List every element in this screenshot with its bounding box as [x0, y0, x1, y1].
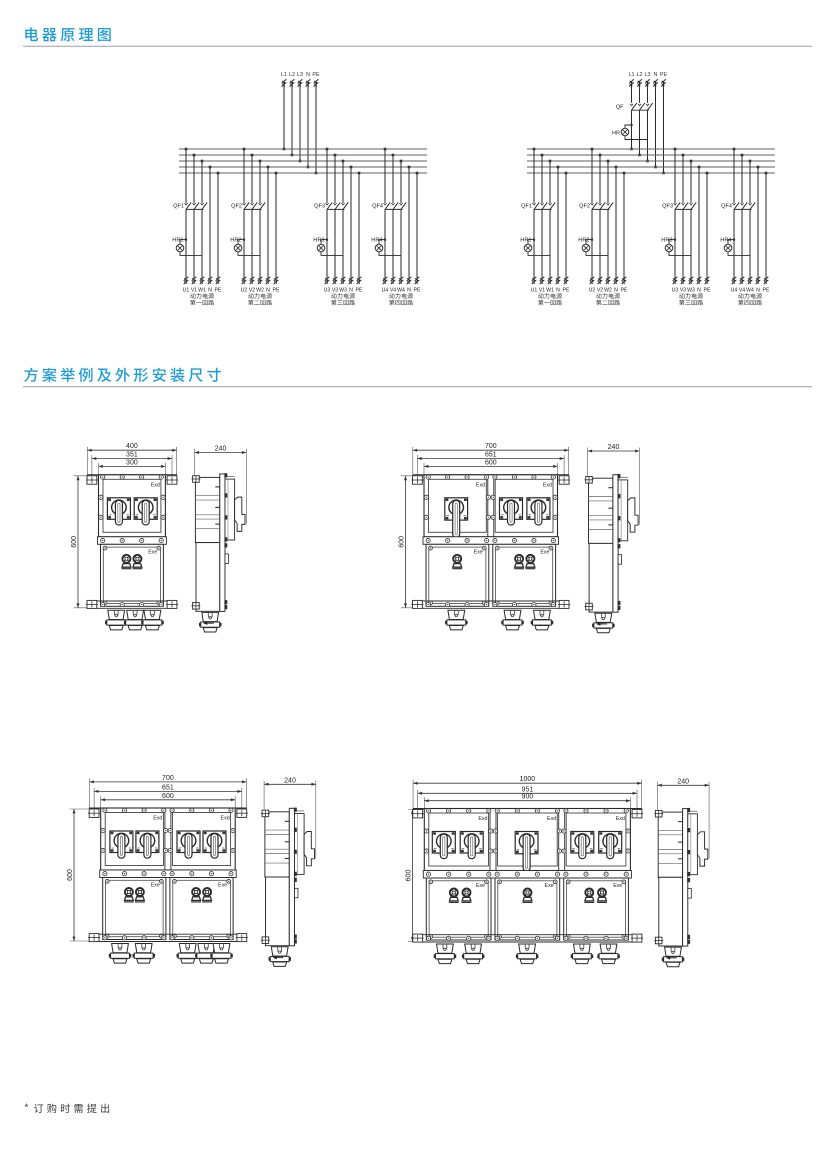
svg-text:Exd: Exd — [543, 482, 552, 488]
svg-text:QF4: QF4 — [372, 204, 383, 210]
svg-text:V4: V4 — [390, 288, 396, 294]
svg-text:Exd: Exd — [153, 816, 162, 822]
svg-text:Exd: Exd — [478, 816, 487, 822]
svg-text:Exe: Exe — [148, 549, 157, 555]
svg-text:HR3: HR3 — [313, 237, 324, 243]
svg-text:L3: L3 — [297, 72, 303, 78]
svg-text:240: 240 — [215, 446, 227, 453]
svg-text:HR: HR — [612, 131, 620, 137]
svg-text:PE: PE — [414, 288, 421, 294]
svg-text:U4: U4 — [382, 288, 389, 294]
svg-text:W1: W1 — [198, 288, 206, 294]
svg-text:U4: U4 — [731, 288, 738, 294]
svg-text:L1: L1 — [281, 72, 287, 78]
svg-text:N: N — [697, 288, 701, 294]
svg-text:W3: W3 — [339, 288, 347, 294]
svg-text:N: N — [306, 72, 310, 78]
svg-text:351: 351 — [126, 452, 138, 459]
svg-text:300: 300 — [126, 459, 138, 466]
svg-text:HR4: HR4 — [371, 237, 382, 243]
svg-text:Exd: Exd — [221, 816, 230, 822]
svg-text:HR1: HR1 — [520, 237, 531, 243]
svg-text:600: 600 — [485, 459, 497, 466]
svg-text:W3: W3 — [687, 288, 695, 294]
svg-text:240: 240 — [284, 777, 296, 784]
svg-text:N: N — [349, 288, 353, 294]
svg-text:600: 600 — [405, 870, 412, 882]
svg-text:U3: U3 — [672, 288, 679, 294]
svg-text:600: 600 — [71, 536, 78, 548]
svg-text:600: 600 — [162, 793, 174, 800]
svg-text:PE: PE — [215, 288, 222, 294]
svg-text:Exe: Exe — [613, 883, 622, 889]
svg-text:L2: L2 — [289, 72, 295, 78]
svg-text:951: 951 — [522, 786, 534, 793]
svg-text:L2: L2 — [637, 72, 643, 78]
svg-text:N: N — [614, 288, 618, 294]
svg-text:N: N — [266, 288, 270, 294]
svg-text:U2: U2 — [241, 288, 248, 294]
svg-text:W2: W2 — [256, 288, 264, 294]
svg-text:V4: V4 — [739, 288, 745, 294]
svg-text:*: * — [25, 1103, 29, 1114]
svg-text:700: 700 — [162, 775, 174, 782]
svg-text:HR2: HR2 — [230, 237, 241, 243]
svg-text:Exd: Exd — [151, 482, 160, 488]
svg-text:600: 600 — [67, 869, 74, 881]
svg-text:V1: V1 — [539, 288, 545, 294]
svg-text:QF3: QF3 — [314, 204, 325, 210]
svg-text:PE: PE — [704, 288, 711, 294]
svg-text:PE: PE — [763, 288, 770, 294]
svg-text:Exd: Exd — [476, 482, 485, 488]
svg-text:1000: 1000 — [520, 776, 536, 783]
svg-text:Exe: Exe — [545, 883, 554, 889]
svg-text:QF1: QF1 — [521, 204, 532, 210]
svg-text:PE: PE — [312, 72, 320, 78]
svg-text:U2: U2 — [589, 288, 596, 294]
svg-text:L1: L1 — [629, 72, 635, 78]
svg-text:V1: V1 — [191, 288, 197, 294]
svg-text:HR2: HR2 — [578, 237, 589, 243]
svg-text:Exe: Exe — [476, 883, 485, 889]
svg-text:W2: W2 — [604, 288, 612, 294]
svg-text:V2: V2 — [597, 288, 603, 294]
svg-text:N: N — [654, 72, 658, 78]
svg-text:PE: PE — [621, 288, 628, 294]
svg-text:651: 651 — [485, 452, 497, 459]
svg-text:W4: W4 — [746, 288, 754, 294]
svg-text:QF3: QF3 — [662, 204, 673, 210]
svg-text:Exe: Exe — [218, 883, 227, 889]
svg-text:W4: W4 — [397, 288, 405, 294]
svg-text:HR4: HR4 — [720, 237, 731, 243]
svg-text:QF1: QF1 — [173, 204, 184, 210]
svg-text:Exe: Exe — [540, 549, 549, 555]
svg-text:U1: U1 — [183, 288, 190, 294]
svg-text:QF4: QF4 — [721, 204, 732, 210]
svg-text:240: 240 — [677, 778, 689, 785]
svg-text:651: 651 — [162, 784, 174, 791]
svg-text:V3: V3 — [332, 288, 338, 294]
svg-text:700: 700 — [485, 443, 497, 450]
svg-text:N: N — [756, 288, 760, 294]
svg-text:W1: W1 — [546, 288, 554, 294]
svg-text:240: 240 — [608, 444, 620, 451]
svg-text:V3: V3 — [680, 288, 686, 294]
svg-text:600: 600 — [398, 536, 405, 548]
svg-text:QF2: QF2 — [231, 204, 242, 210]
svg-text:HR3: HR3 — [661, 237, 672, 243]
svg-text:N: N — [407, 288, 411, 294]
svg-text:PE: PE — [273, 288, 280, 294]
svg-text:V2: V2 — [249, 288, 255, 294]
svg-text:PE: PE — [356, 288, 363, 294]
svg-text:Exe: Exe — [474, 549, 483, 555]
svg-text:900: 900 — [522, 794, 534, 801]
svg-text:N: N — [556, 288, 560, 294]
svg-text:U1: U1 — [531, 288, 538, 294]
svg-text:Exd: Exd — [616, 816, 625, 822]
svg-text:Exd: Exd — [547, 816, 556, 822]
svg-text:L3: L3 — [645, 72, 651, 78]
svg-text:N: N — [208, 288, 212, 294]
svg-text:QF: QF — [616, 104, 624, 110]
svg-text:Exe: Exe — [151, 883, 160, 889]
svg-text:HR1: HR1 — [172, 237, 183, 243]
svg-text:400: 400 — [126, 443, 138, 450]
svg-text:PE: PE — [660, 72, 668, 78]
svg-text:QF2: QF2 — [579, 204, 590, 210]
svg-text:PE: PE — [563, 288, 570, 294]
svg-text:U3: U3 — [324, 288, 331, 294]
